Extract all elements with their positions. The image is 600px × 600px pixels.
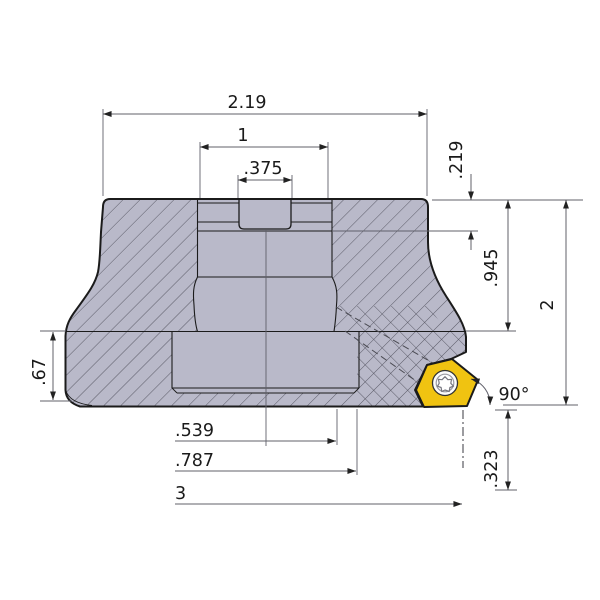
dim-body-height: .945 — [466, 200, 516, 331]
approach-angle-label: 90° — [498, 385, 529, 405]
overall-width-label: 2.19 — [228, 93, 267, 113]
counterbore-radius-label: .787 — [175, 451, 214, 471]
keyway-width-label: .375 — [244, 159, 283, 179]
tip-offset-label: .323 — [482, 450, 502, 489]
bore-radius-label: .539 — [175, 421, 214, 441]
body-height-label: .945 — [482, 249, 502, 288]
insert-screw — [433, 371, 458, 396]
technical-drawing: 2.19 1 .375 .219 .945 — [0, 0, 600, 600]
milling-cutter-drawing: 2.19 1 .375 .219 .945 — [0, 0, 600, 600]
dim-bore-radius: .539 — [175, 409, 337, 445]
dim-keyway-width: .375 — [238, 159, 292, 198]
overall-height-label: 2 — [538, 299, 558, 310]
cutter-body-section — [66, 198, 467, 446]
counterbore-diameter-label: 1 — [237, 126, 248, 146]
dim-cutting-diameter: 3 — [175, 410, 463, 504]
dim-overall-height: 2 — [503, 200, 578, 405]
cutting-diameter-label: 3 — [175, 484, 186, 504]
dim-approach-angle: 90° — [471, 379, 530, 405]
dim-tip-offset: .323 — [482, 410, 517, 490]
dim-overall-width: 2.19 — [103, 93, 427, 196]
counterbore-depth-label: .219 — [447, 141, 467, 180]
flange-height-label: .67 — [30, 358, 50, 386]
